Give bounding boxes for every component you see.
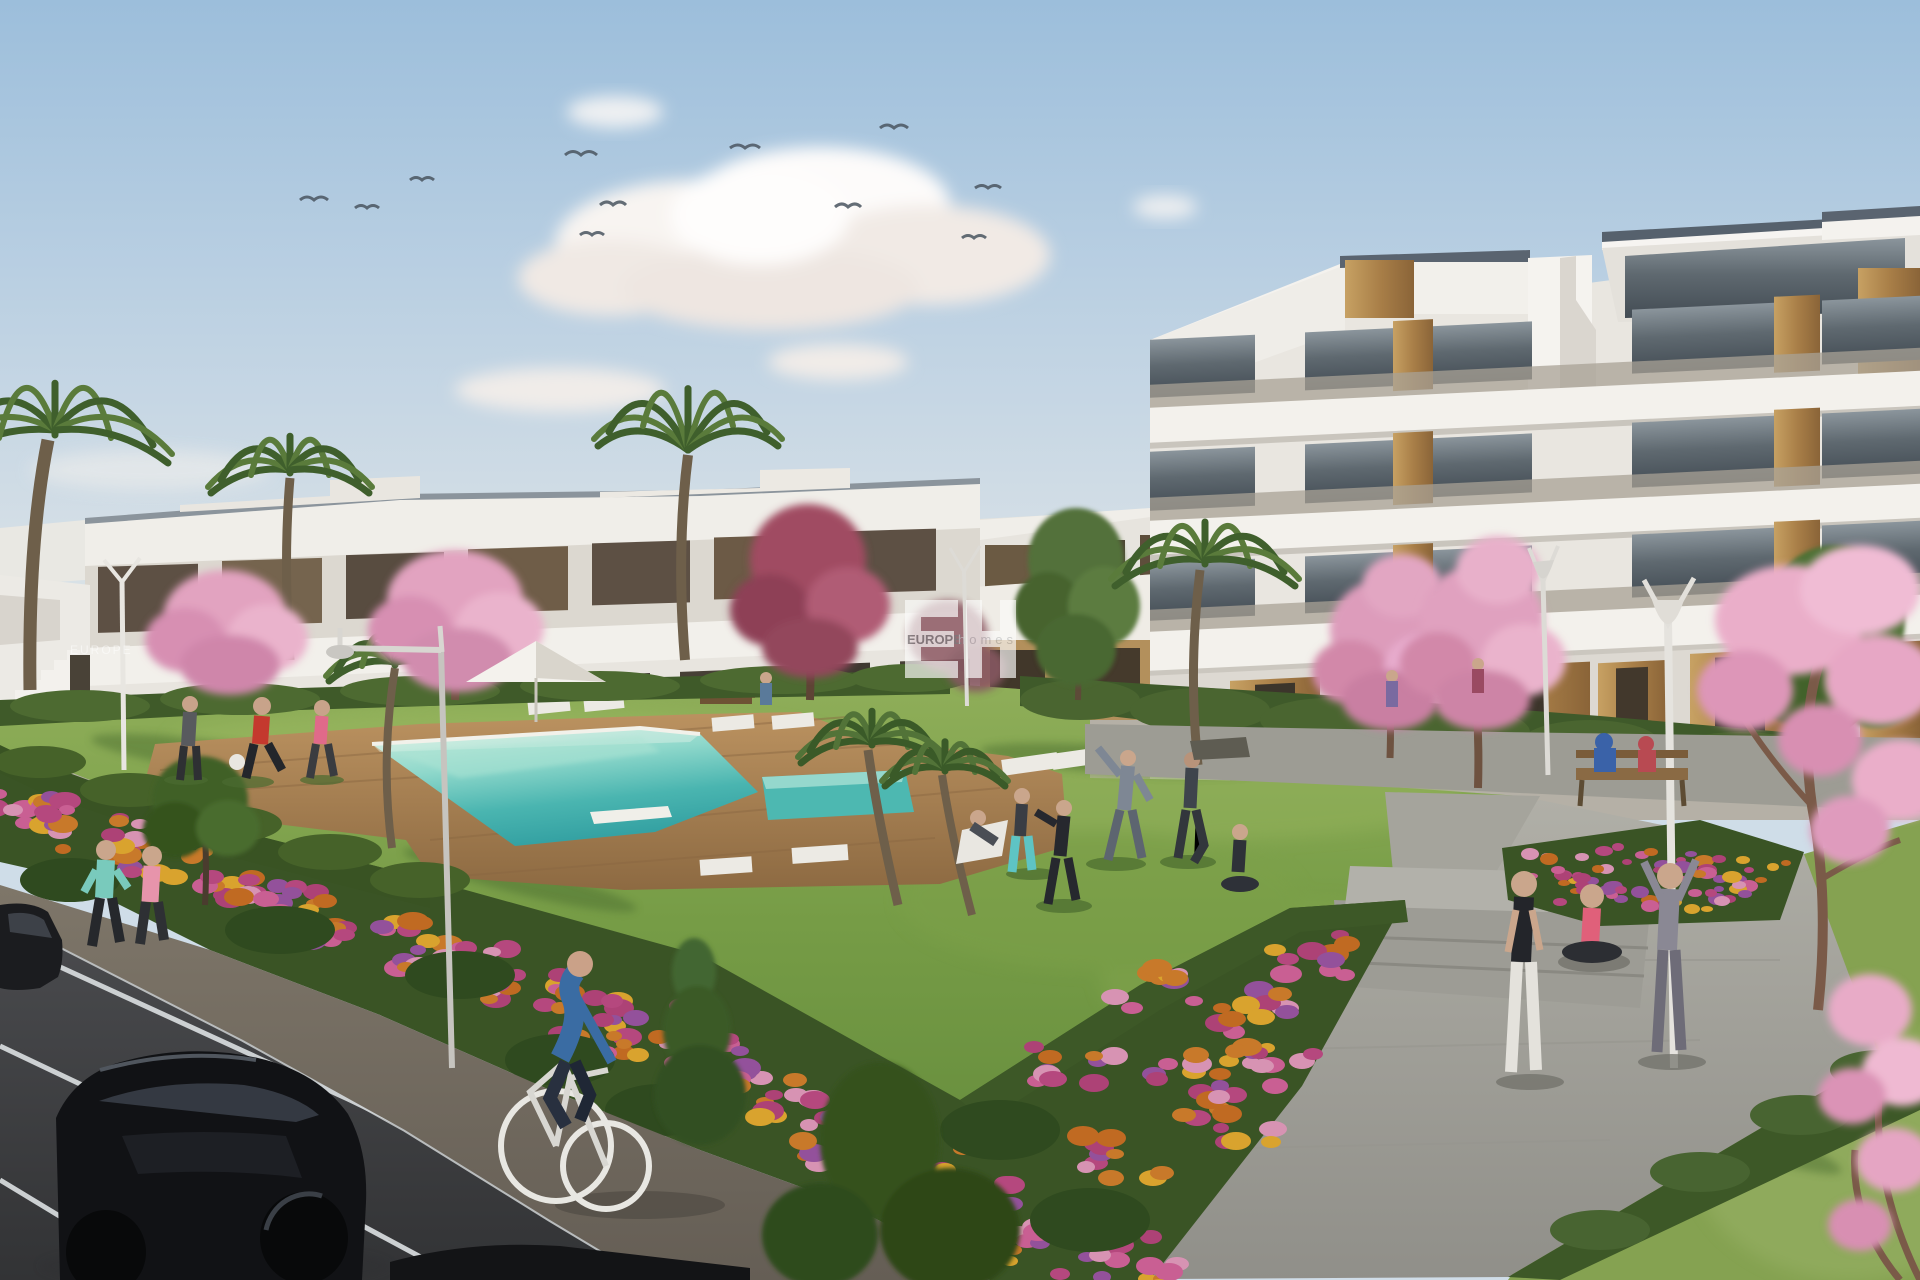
svg-text:EUROPE: EUROPE <box>70 643 133 657</box>
svg-text:homes: homes <box>958 632 1017 647</box>
svg-text:EUROPE: EUROPE <box>907 632 962 647</box>
